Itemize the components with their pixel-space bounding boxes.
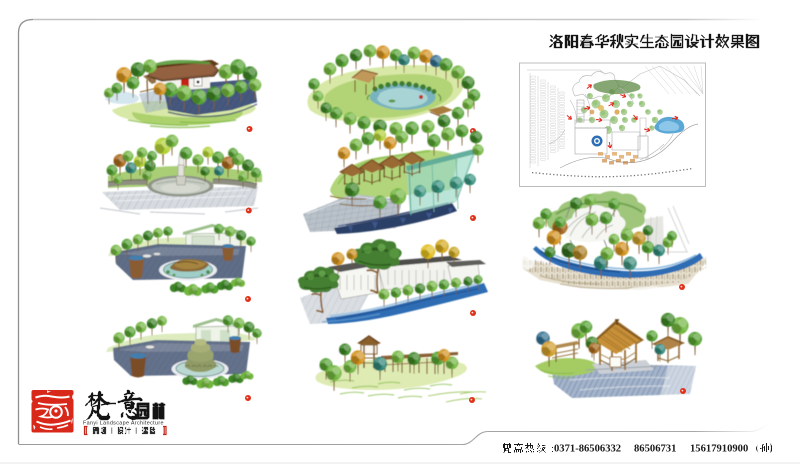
svg-text:Fanyi Landscape Architecture: Fanyi Landscape Architecture xyxy=(83,421,164,427)
svg-text:15617910900: 15617910900 xyxy=(690,444,748,455)
svg-text:0371-86506332: 0371-86506332 xyxy=(554,444,621,455)
svg-text:86506731: 86506731 xyxy=(634,444,676,455)
